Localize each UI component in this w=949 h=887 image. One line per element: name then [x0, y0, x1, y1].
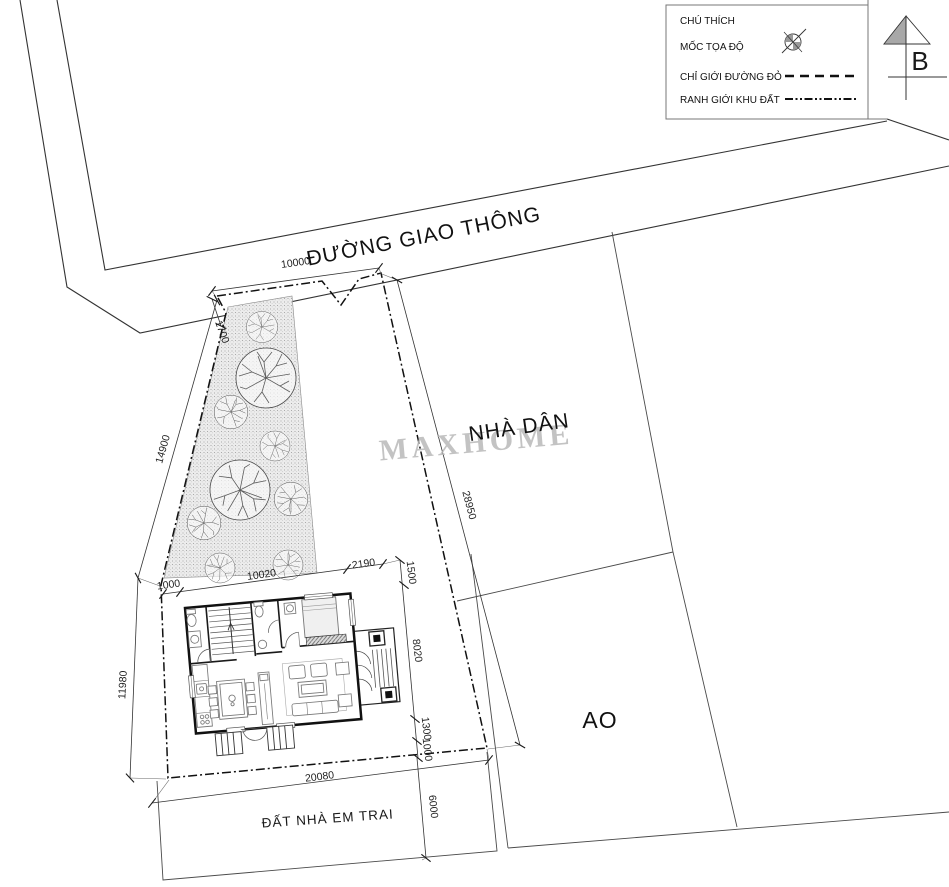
- site-plan-page: 10000 1700 14900 11980 1000 10020 2190 1…: [0, 0, 949, 887]
- coffee-table: [298, 680, 327, 697]
- dim-boundary-left-lower: 11980: [116, 670, 129, 699]
- side-table: [335, 662, 349, 675]
- porch-column: [369, 631, 385, 646]
- legend-item-site-boundary: RANH GIỚI KHU ĐẤT: [680, 93, 780, 106]
- nightstand: [284, 602, 296, 614]
- legend-box: CHÚ THÍCH MỐC TỌA ĐỘ CHỈ GIỚI ĐƯỜNG ĐỎ R…: [666, 0, 887, 119]
- legend-item-survey-marker: MỐC TỌA ĐỘ: [680, 39, 744, 53]
- tree-icon: [246, 311, 277, 342]
- site-plan-drawing: 10000 1700 14900 11980 1000 10020 2190 1…: [0, 0, 949, 887]
- legend-title: CHÚ THÍCH: [680, 14, 735, 27]
- legend-item-red-line: CHỈ GIỚI ĐƯỜNG ĐỎ: [680, 70, 782, 83]
- armchair: [288, 665, 305, 679]
- bed: [302, 597, 339, 638]
- north-label: B: [911, 46, 928, 76]
- pond-label: AO: [582, 707, 617, 733]
- side-table: [338, 694, 352, 707]
- tree-icon: [236, 348, 296, 408]
- dim-south-parcel-depth: 6000: [426, 794, 440, 819]
- porch-column: [381, 687, 397, 702]
- side-porch: [354, 628, 400, 705]
- armchair: [310, 663, 327, 677]
